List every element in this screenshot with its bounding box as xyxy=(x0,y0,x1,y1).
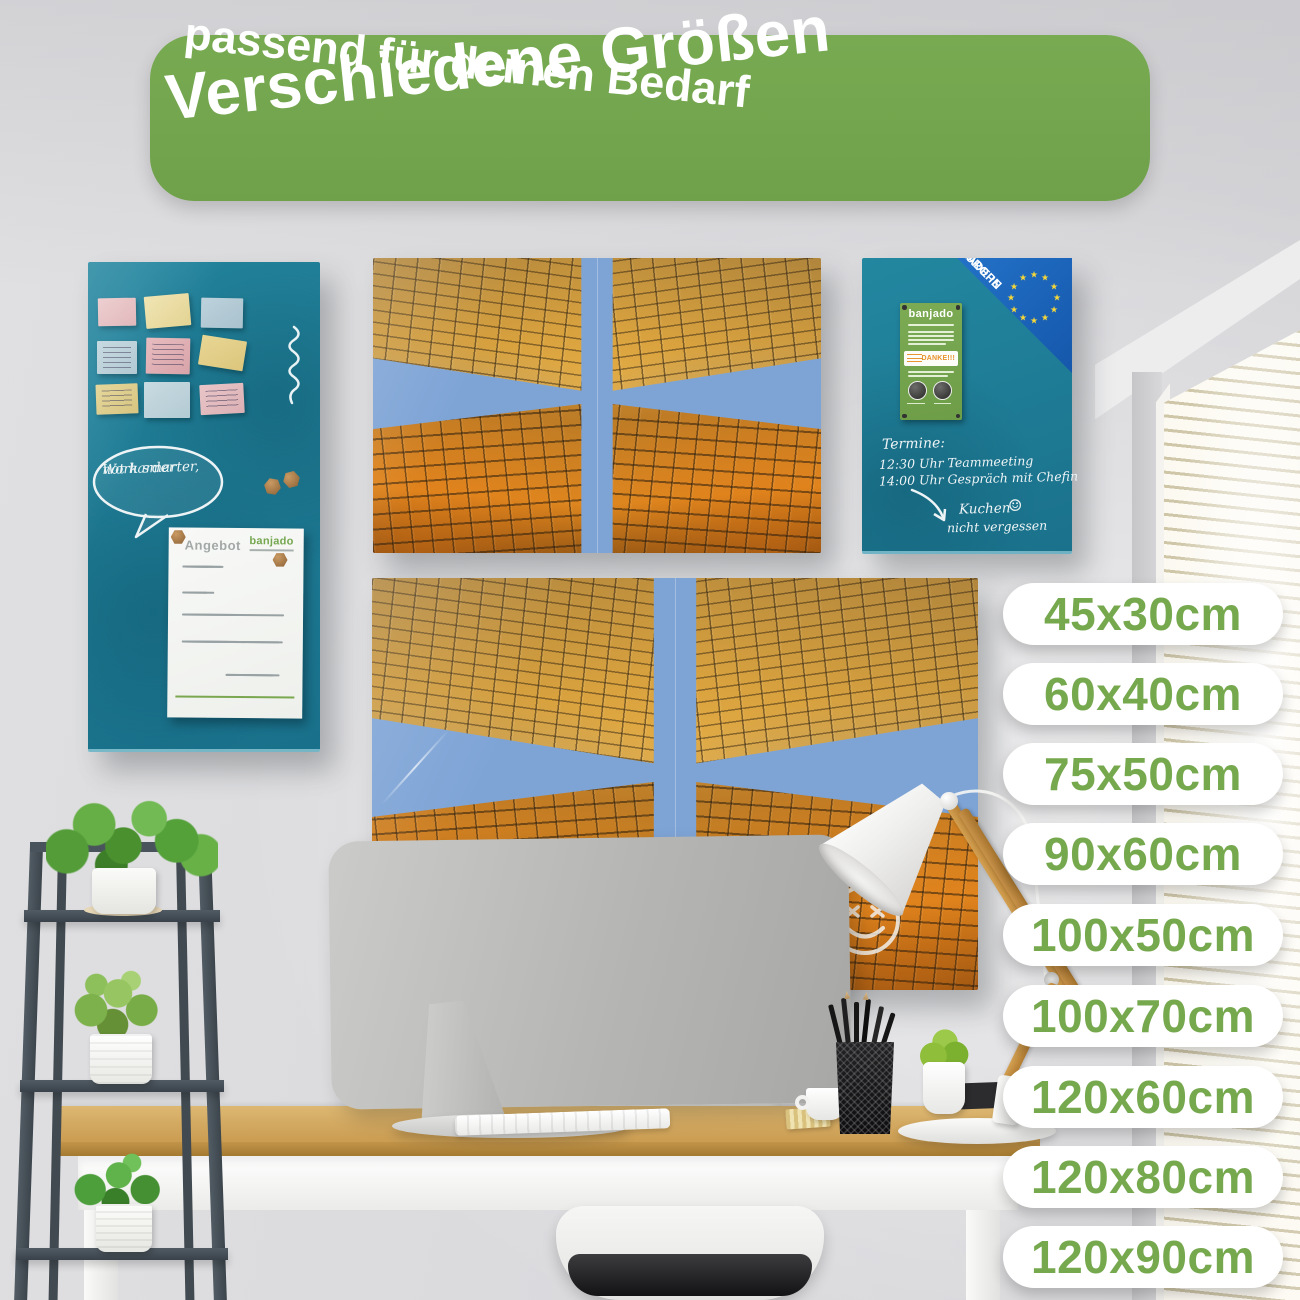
skyscraper-photo xyxy=(373,258,821,553)
label-text-line xyxy=(908,331,954,333)
speech-bubble xyxy=(88,442,233,542)
product-scene: Work smarter, not harder Angebot banjado xyxy=(0,0,1300,1300)
size-pill: 100x50cm xyxy=(1003,904,1283,966)
document-footer-rule xyxy=(175,695,294,698)
sticky-note xyxy=(201,298,244,329)
plant-pot xyxy=(92,868,156,914)
brand-logo: banjado xyxy=(249,535,293,547)
glass-seam xyxy=(597,258,598,553)
document-table-lines xyxy=(182,641,288,642)
plant-pot xyxy=(96,1204,152,1252)
eu-star-icon: ★ xyxy=(1019,314,1027,323)
skyscraper-photo xyxy=(373,258,821,553)
label-text-line xyxy=(908,339,954,341)
cork-magnet-icon xyxy=(281,469,302,490)
sticky-note xyxy=(97,341,137,374)
lamp-joint xyxy=(940,792,958,810)
label-text-line xyxy=(908,375,948,377)
eu-star-icon: ★ xyxy=(1030,317,1038,326)
eu-star-icon: ★ xyxy=(1019,274,1027,283)
eu-star-icon: ★ xyxy=(1050,283,1058,292)
memo-board-small: MADE IN EUROPE ★ ★ ★ ★ ★ ★ ★ ★ ★ ★ ★ ★ b… xyxy=(862,258,1072,554)
monitor-back xyxy=(328,834,852,1109)
sticky-note xyxy=(198,335,247,372)
document-text-lines xyxy=(182,614,288,615)
sticky-note xyxy=(199,383,245,415)
dog-photo xyxy=(933,381,952,400)
handwritten-schedule-title: Termine: xyxy=(882,435,945,453)
handwritten-reminder: Kuchen xyxy=(959,500,1011,517)
dog-photo xyxy=(908,381,927,400)
document-footer-columns xyxy=(175,701,294,702)
chair-seat xyxy=(556,1206,824,1300)
sticky-note xyxy=(98,298,136,327)
size-pill: 100x70cm xyxy=(1003,985,1283,1047)
brand-label: banjado DANKE!!! xyxy=(900,303,962,420)
cork-magnet-icon xyxy=(272,552,287,567)
offer-document: Angebot banjado xyxy=(167,527,304,718)
size-pill: 120x90cm xyxy=(1003,1226,1283,1288)
size-pill: 60x40cm xyxy=(1003,663,1283,725)
desk-edge xyxy=(55,1142,1040,1156)
size-pill: 120x60cm xyxy=(1003,1066,1283,1128)
thanks-text: DANKE!!! xyxy=(922,355,955,362)
chair-cushion xyxy=(568,1254,812,1296)
handwritten-reminder: nicht vergessen xyxy=(947,518,1048,536)
size-pill: 45x30cm xyxy=(1003,583,1283,645)
sticky-note xyxy=(146,338,191,375)
sticky-note xyxy=(144,293,192,329)
headline-banner: Verschiedene Größen passend für deinen B… xyxy=(150,35,1150,201)
eu-star-icon: ★ xyxy=(1007,294,1015,303)
plant-pot xyxy=(90,1034,152,1084)
label-text-line xyxy=(908,371,954,373)
pen-cup xyxy=(836,1042,894,1134)
label-text-line xyxy=(908,324,954,326)
eu-star-icon: ★ xyxy=(1010,283,1018,292)
cork-magnet-icon xyxy=(171,529,186,544)
label-text-line xyxy=(908,335,954,337)
skyscraper-photo xyxy=(373,258,821,553)
size-pill: 75x50cm xyxy=(1003,743,1283,805)
eu-star-icon: ★ xyxy=(1041,274,1049,283)
desk-leg xyxy=(966,1210,1000,1300)
skyscraper-photo xyxy=(373,258,821,553)
eu-star-icon: ★ xyxy=(1010,306,1018,315)
label-text-line xyxy=(908,343,946,345)
eu-star-icon: ★ xyxy=(1041,314,1049,323)
size-pill: 90x60cm xyxy=(1003,823,1283,885)
thanks-box: DANKE!!! xyxy=(904,351,958,366)
sticky-note xyxy=(95,383,138,414)
sticky-note xyxy=(144,382,190,418)
cork-magnet-icon xyxy=(263,477,283,497)
eu-star-icon: ★ xyxy=(1053,294,1061,303)
memo-board-teal: Work smarter, not harder Angebot banjado xyxy=(88,262,320,752)
brand-logo: banjado xyxy=(900,308,962,320)
eu-star-icon: ★ xyxy=(1030,271,1038,280)
eu-star-icon: ★ xyxy=(1050,306,1058,315)
document-title: Angebot xyxy=(185,538,241,553)
smiley-icon: ☺ xyxy=(1008,496,1023,515)
made-in-europe-badge: MADE IN EUROPE ★ ★ ★ ★ ★ ★ ★ ★ ★ ★ ★ ★ xyxy=(957,258,1072,373)
contrail xyxy=(382,730,450,805)
plant-pot xyxy=(923,1062,965,1114)
glass-board-medium xyxy=(373,258,821,553)
size-pill: 120x80cm xyxy=(1003,1146,1283,1208)
squiggle-doodle xyxy=(280,325,304,405)
screw-icon xyxy=(902,414,907,419)
logo-subline xyxy=(250,549,294,551)
screw-icon xyxy=(956,414,961,419)
bubble-text: Work smarter, not harder xyxy=(102,458,214,462)
document-total-lines xyxy=(226,674,286,675)
